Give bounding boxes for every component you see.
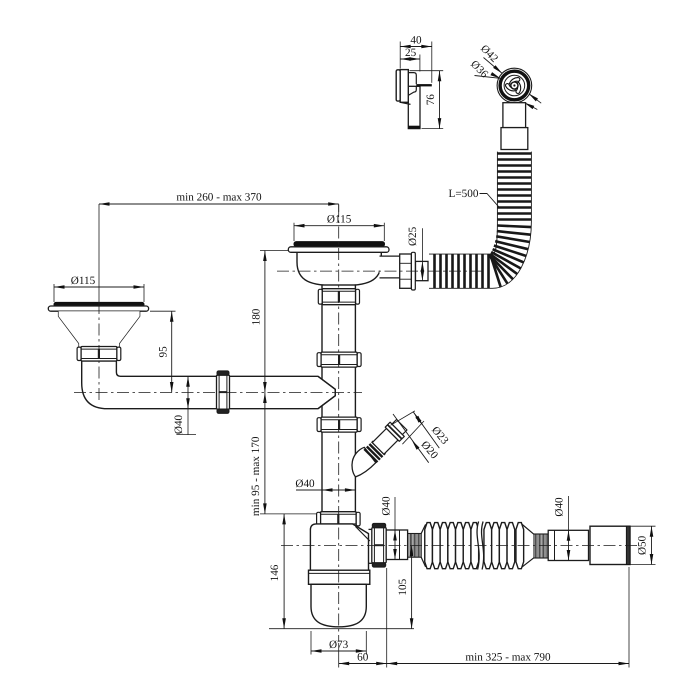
svg-text:76: 76 [425,94,437,106]
svg-text:180: 180 [250,308,262,325]
svg-text:Ø40: Ø40 [173,414,185,434]
svg-text:Ø115: Ø115 [327,213,352,225]
svg-text:Ø40: Ø40 [554,497,566,517]
svg-text:min 260 - max 370: min 260 - max 370 [176,192,262,204]
svg-text:40: 40 [410,35,422,47]
svg-text:min 95 - max 170: min 95 - max 170 [250,436,262,516]
svg-text:L=500: L=500 [449,188,479,200]
svg-text:105: 105 [397,578,409,595]
svg-text:60: 60 [357,651,369,663]
svg-text:min 325 - max 790: min 325 - max 790 [465,651,551,663]
svg-text:Ø25: Ø25 [407,226,419,246]
svg-text:25: 25 [405,47,417,59]
svg-text:Ø50: Ø50 [637,535,649,555]
svg-text:95: 95 [157,346,169,358]
svg-text:Ø115: Ø115 [71,275,96,287]
svg-text:Ø40: Ø40 [380,496,392,516]
svg-text:Ø40: Ø40 [295,478,315,490]
svg-text:146: 146 [269,564,281,581]
